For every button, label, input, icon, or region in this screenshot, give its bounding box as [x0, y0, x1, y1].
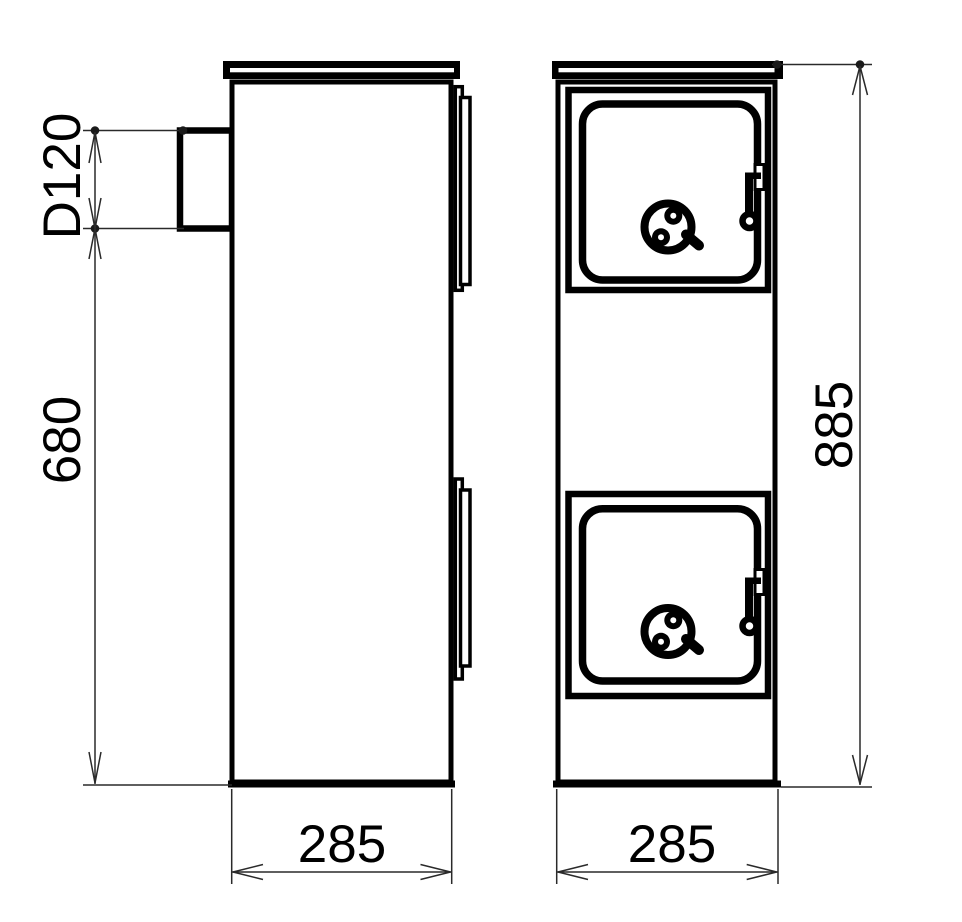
dim-total-height: 885 — [772, 60, 872, 787]
dim-label-flue-diameter: D120 — [33, 113, 92, 240]
dim-dot-flue-top-right — [179, 126, 188, 135]
lower-knob-pin-1-hole — [670, 617, 676, 623]
stove-two-view-drawing: D120 680 285 885 — [0, 0, 962, 922]
lower-latch-pivot — [743, 619, 757, 633]
front-top-plate-groove — [559, 68, 775, 72]
technical-drawing-page: D120 680 285 885 — [0, 0, 962, 922]
lower-door-assembly — [569, 494, 769, 696]
side-view — [180, 61, 470, 784]
dim-label-front-width: 285 — [628, 815, 716, 874]
side-top-plate-groove — [230, 68, 454, 72]
dim-label-side-depth: 285 — [298, 815, 386, 874]
lower-latch-bar — [745, 579, 753, 621]
flue-pipe-stub — [180, 131, 232, 229]
lower-knob-pin-2-hole — [658, 639, 664, 645]
upper-knob-pin-2-hole — [658, 234, 664, 240]
upper-door-profile — [461, 98, 471, 285]
dim-label-total-height: 885 — [805, 381, 864, 469]
front-view — [552, 61, 783, 784]
dim-label-flue-height: 680 — [33, 396, 92, 484]
dim-front-width: 285 — [557, 789, 778, 884]
upper-knob-pin-1-hole — [670, 213, 676, 219]
lower-door-profile — [461, 490, 471, 666]
upper-door-assembly — [569, 90, 769, 290]
dim-dot-top-body — [773, 60, 782, 69]
upper-latch-pivot — [743, 214, 757, 228]
dim-side-depth: 285 — [232, 789, 452, 884]
side-body — [232, 82, 451, 782]
upper-latch-bar — [745, 174, 753, 216]
